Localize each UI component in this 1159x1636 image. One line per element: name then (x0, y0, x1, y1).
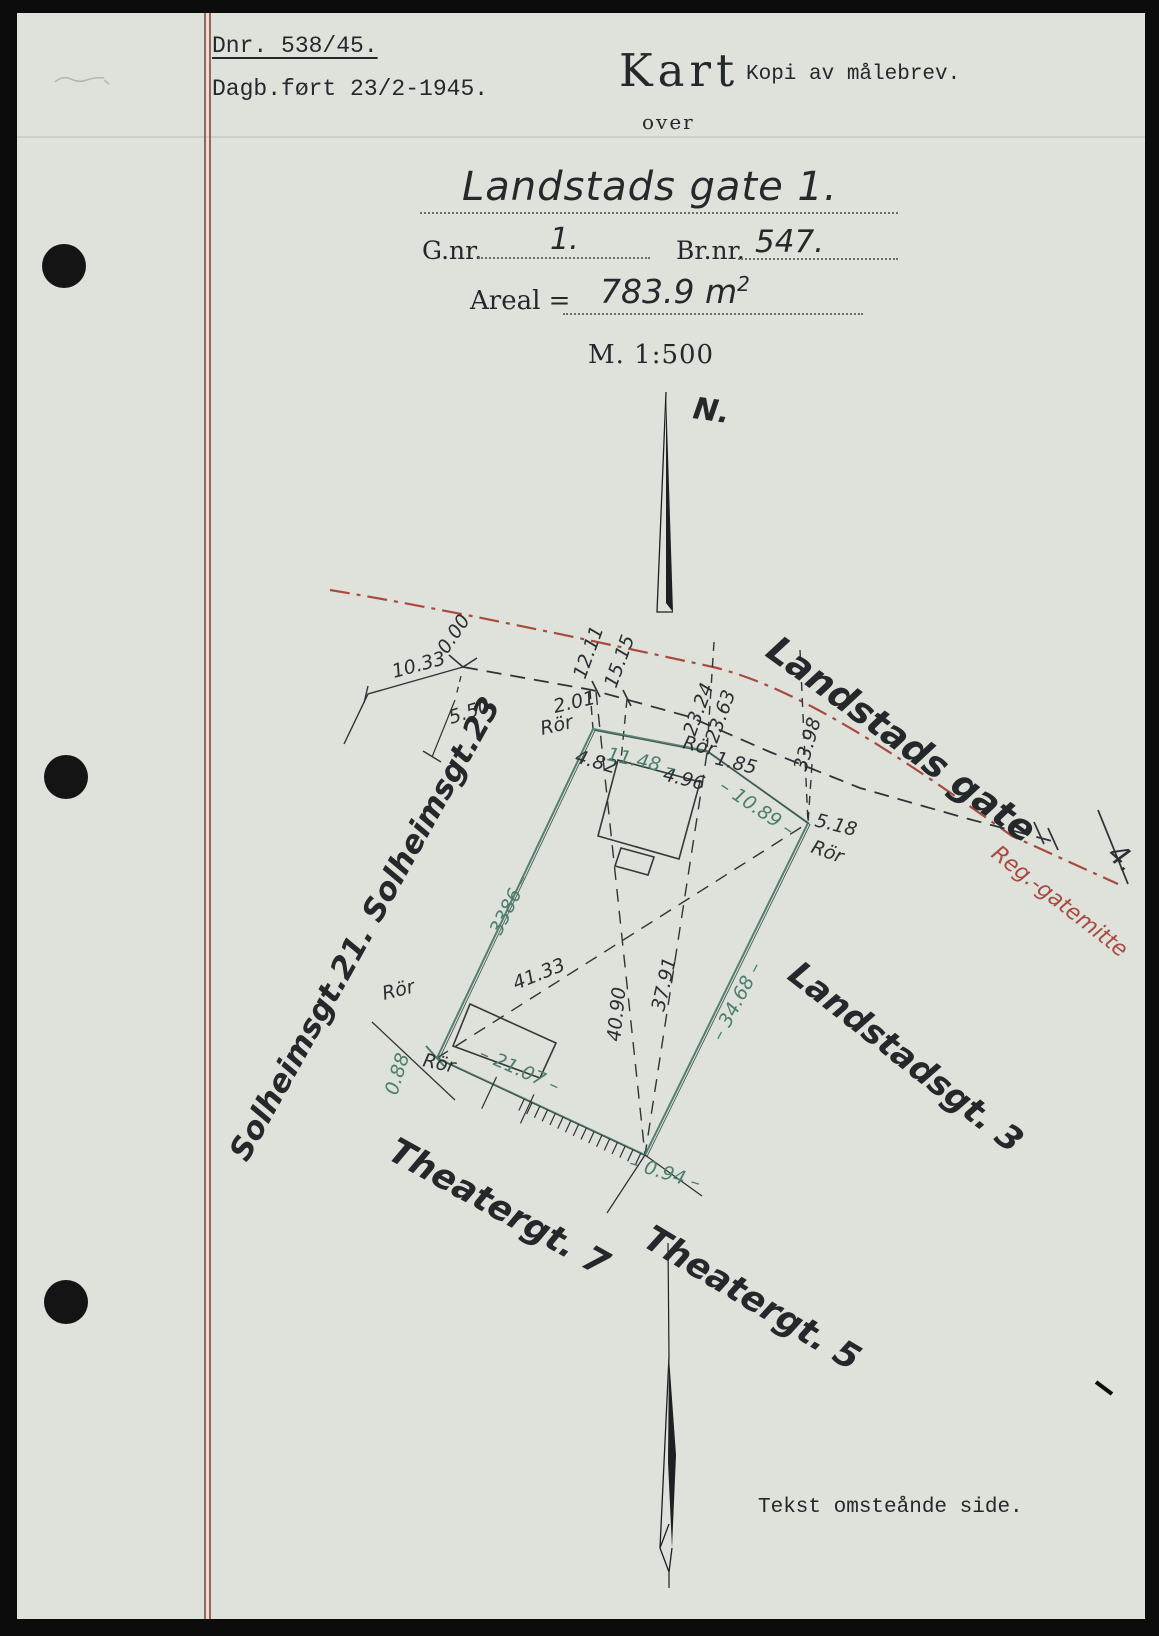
map-label-40.90: 40.90 (603, 986, 631, 1042)
areal-label: Areal = (470, 286, 570, 316)
map-label-N.: N. (691, 391, 732, 431)
map-label-33.98: 33.98 (790, 715, 826, 773)
building-porch-outline (615, 848, 654, 875)
areal-dotted-rule (563, 313, 863, 315)
copy-of-survey-note: Kopi av målebrev. (746, 63, 960, 86)
brnr-label: Br.nr. (676, 236, 745, 265)
map-label-15.15: 15.15 (600, 632, 639, 691)
map-label--21.07-: – 21.07 – (476, 1042, 563, 1097)
map-label-Rör: Rör (808, 836, 847, 868)
map-label-41.33: 41.33 (510, 954, 569, 995)
areal-number: 783.9 m (600, 272, 737, 311)
punch-hole (44, 1280, 88, 1324)
map-label--34.68-: – 34.68 – (707, 959, 767, 1045)
survey-map-drawing: 10.330.005.5012.1115.152.01Rör23.2423.63… (0, 0, 1159, 1636)
map-label-37.91: 37.91 (647, 955, 681, 1013)
property-street-title: Landstads gate 1. (462, 164, 838, 210)
brnr-dotted-rule (738, 258, 898, 260)
map-label-11.48-: 11.48 – (605, 743, 678, 779)
map-label-5.18: 5.18 (813, 810, 859, 842)
map-label--3386-: – 3386 – (479, 871, 534, 952)
margin-rule (205, 13, 210, 1619)
scanned-survey-document: 10.330.005.5012.1115.152.01Rör23.2423.63… (0, 0, 1159, 1636)
map-label-Rör: Rör (538, 711, 576, 740)
map-label-0.88: 0.88 (381, 1051, 414, 1098)
map-label--0.94-: – 0.94 – (627, 1152, 704, 1194)
scan-edge-top (0, 0, 1159, 13)
journal-number: Dnr. 538/45. (212, 33, 378, 59)
map-label-Solheimsgt.21.-Solheimsgt.23: Solheimsgt.21. Solheimsgt.23 (223, 691, 508, 1167)
title-dotted-rule (420, 212, 898, 214)
map-scale: M. 1:500 (588, 340, 714, 370)
punch-hole (44, 755, 88, 799)
areal-superscript: 2 (737, 272, 750, 296)
map-label-Theatergt.-7: Theatergt. 7 (382, 1131, 617, 1285)
pencil-scribble (55, 78, 109, 84)
scan-edge-bottom (0, 1619, 1159, 1636)
map-label-4.: 4. (1101, 837, 1143, 879)
gnr-label: G.nr. (422, 236, 482, 265)
meridian-feather (660, 1243, 676, 1588)
map-label-0.00: 0.00 (433, 610, 475, 657)
gnr-value: 1. (550, 222, 579, 257)
gnr-dotted-rule (478, 257, 650, 259)
text-overleaf-note: Tekst omsteånde side. (758, 1496, 1023, 1519)
map-label-Theatergt.-5: Theatergt. 5 (636, 1218, 867, 1379)
paper-corner-mark (1096, 1382, 1112, 1394)
map-label-1.85: 1.85 (713, 748, 759, 780)
scan-edge-right (1145, 0, 1159, 1636)
form-title-kart: Kart (619, 44, 739, 97)
brnr-value: 547. (755, 224, 824, 260)
form-word-over: over (642, 110, 695, 134)
punch-hole (42, 244, 86, 288)
punch-holes (42, 244, 88, 1324)
north-arrow (657, 392, 673, 612)
daybook-entry-date: Dagb.ført 23/2-1945. (212, 76, 488, 102)
areal-value: 783.9 m2 (600, 272, 750, 311)
map-label-10.33: 10.33 (390, 647, 448, 682)
map-label-Rör: Rör (380, 975, 418, 1005)
map-labels: 10.330.005.5012.1115.152.01Rör23.2423.63… (223, 391, 1144, 1379)
scan-edge-left (0, 0, 17, 1636)
map-label-Landstadsgt.-3: Landstadsgt. 3 (780, 954, 1030, 1162)
map-label-12.11: 12.11 (569, 623, 608, 682)
